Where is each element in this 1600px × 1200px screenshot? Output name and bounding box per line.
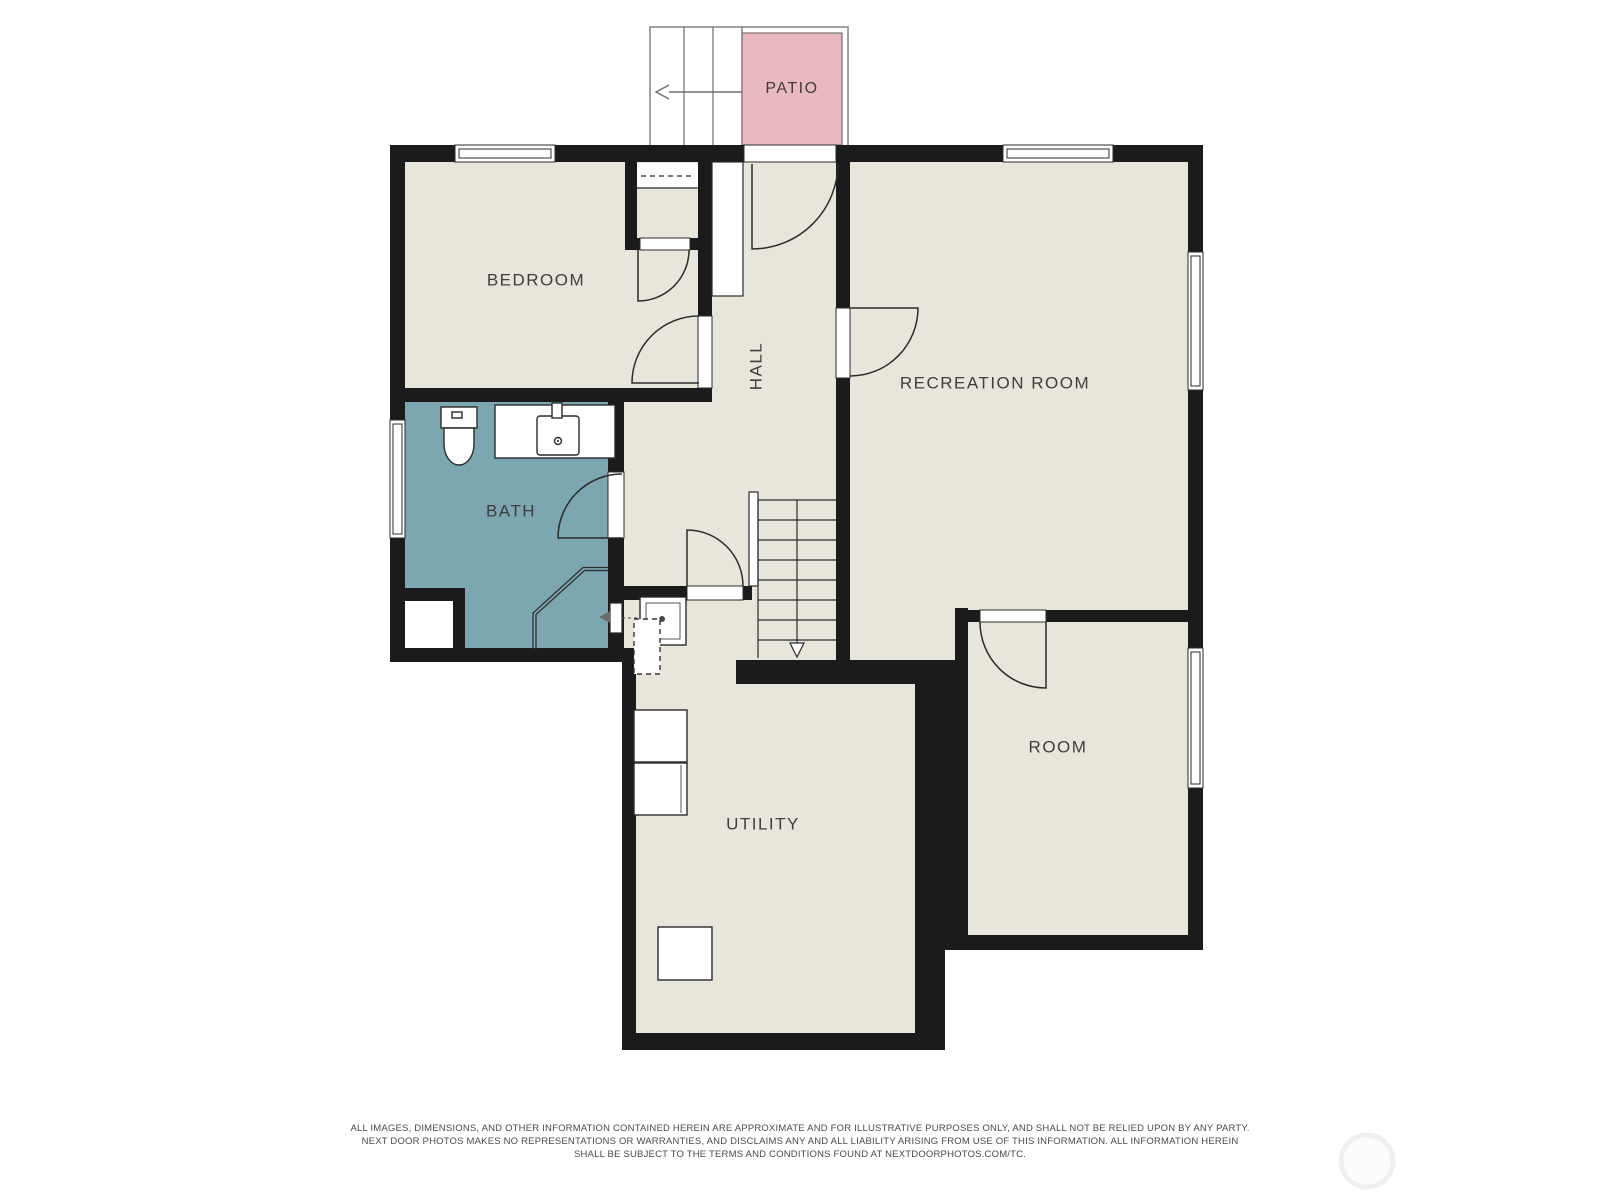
bath-label: BATH xyxy=(486,501,536,520)
disclaimer-text: ALL IMAGES, DIMENSIONS, AND OTHER INFORM… xyxy=(350,1123,1249,1160)
wall-hall-left xyxy=(698,162,712,316)
wall-room-bottom xyxy=(945,935,1203,950)
future-appliance-dashed-outline xyxy=(634,619,660,674)
room-label: ROOM xyxy=(1029,737,1088,756)
room-floor xyxy=(968,622,1188,935)
water-heater-appliance xyxy=(658,927,712,980)
wall-hall-right-lower xyxy=(836,378,850,674)
disclaimer-line-2: NEXT DOOR PHOTOS MAKES NO REPRESENTATION… xyxy=(362,1136,1239,1147)
utility-door-opening xyxy=(687,586,743,600)
washer-appliance xyxy=(634,710,687,762)
bath-nook-recess xyxy=(405,601,453,648)
watermark-circle xyxy=(1341,1135,1393,1187)
bath-door-opening xyxy=(608,472,624,538)
recreation-top-window xyxy=(1003,145,1113,162)
wall-left xyxy=(390,145,405,662)
recreation-door-opening xyxy=(836,308,850,378)
utility-label: UTILITY xyxy=(726,814,800,833)
wall-hall-right-upper xyxy=(836,162,850,308)
hall-label: HALL xyxy=(746,342,765,391)
bedroom-closet xyxy=(637,163,698,188)
room-door-opening xyxy=(980,610,1046,622)
bedroom-window xyxy=(455,145,555,162)
vanity-sink-fixture xyxy=(495,403,615,458)
stair-landing-above xyxy=(712,162,743,296)
wall-utility-bottom xyxy=(622,1033,930,1050)
wall-bath-bottom xyxy=(390,648,636,662)
patio-door-opening xyxy=(744,145,836,162)
closet-door-opening xyxy=(640,238,690,250)
exterior-entry-stairs: PATIO xyxy=(650,27,848,147)
hall-lower-floor xyxy=(624,402,712,586)
bedroom-door-opening xyxy=(698,316,712,388)
patio-label: PATIO xyxy=(765,80,818,97)
wall-closet-left xyxy=(625,162,637,247)
wall-bath-nook-top xyxy=(405,588,465,601)
recreation-room-label: RECREATION ROOM xyxy=(900,373,1090,392)
wall-bedroom-bottom xyxy=(390,388,712,402)
toilet-fixture xyxy=(441,407,477,465)
floorplan-page: PATIO xyxy=(0,0,1600,1200)
stair-side-wall xyxy=(749,492,758,586)
recreation-right-window xyxy=(1188,252,1203,390)
wall-utility-room-divider xyxy=(915,660,968,935)
disclaimer-line-1: ALL IMAGES, DIMENSIONS, AND OTHER INFORM… xyxy=(350,1123,1249,1134)
bath-window xyxy=(390,420,405,538)
room-right-window xyxy=(1188,648,1203,788)
floorplan-canvas: PATIO xyxy=(0,0,1600,1200)
disclaimer-line-3: SHALL BE SUBJECT TO THE TERMS AND CONDIT… xyxy=(574,1149,1026,1160)
wall-bath-nook-side xyxy=(453,601,465,648)
dryer-appliance xyxy=(634,763,687,815)
bedroom-label: BEDROOM xyxy=(487,270,585,289)
